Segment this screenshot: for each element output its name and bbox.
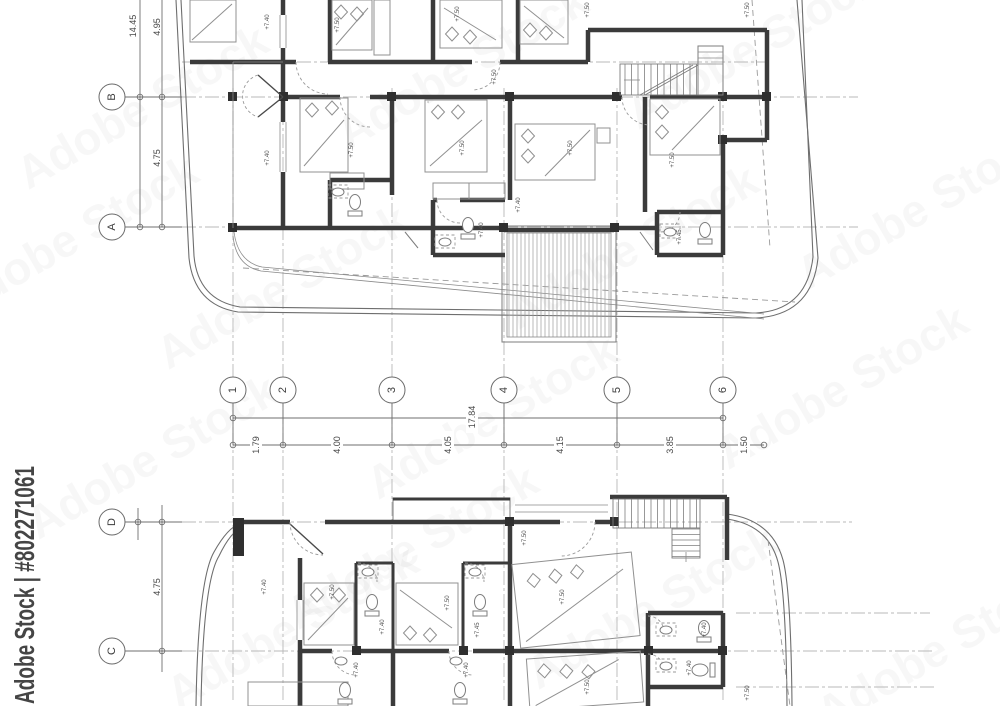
grid-row-label: B	[106, 93, 118, 100]
blueprint-page: Adobe StockAdobe StockAdobe StockAdobe S…	[0, 0, 1000, 706]
dimension-segment: 4.05	[443, 436, 453, 454]
stock-id-watermark: Adobe Stock | #802271061	[9, 466, 40, 704]
ghost-watermarks: Adobe StockAdobe StockAdobe StockAdobe S…	[0, 0, 1000, 706]
grid-column-label: 4	[498, 387, 510, 393]
deck	[502, 226, 616, 342]
grid-row-label: C	[106, 647, 118, 655]
level-label: +7.50	[568, 140, 574, 156]
level-label: +7.50	[522, 530, 528, 546]
ghost-watermark-text: Adobe Stock	[787, 113, 1000, 299]
level-label: +7.45	[677, 229, 683, 245]
grid-row-label: A	[106, 223, 118, 231]
level-label: +7.50	[349, 142, 355, 158]
level-label: +7.40	[479, 222, 485, 238]
grid-column-label: 3	[386, 387, 398, 393]
level-label: +7.40	[354, 662, 360, 678]
level-label: +7.50	[745, 2, 751, 18]
dimension-text: 14.45	[128, 15, 138, 38]
level-label: +7.50	[330, 584, 336, 600]
dimension-text: 4.95	[152, 18, 162, 36]
ghost-watermark-text: Adobe Stock	[327, 0, 597, 159]
grid-column-label: 2	[277, 387, 289, 393]
grid-column-label: 1	[227, 387, 239, 393]
level-label: +7.50	[335, 17, 341, 33]
level-label: +7.50	[585, 2, 591, 18]
level-label: +7.40	[516, 197, 522, 213]
level-label: +7.50	[585, 679, 591, 695]
level-label: +7.50	[492, 69, 498, 85]
level-label: +7.50	[670, 152, 676, 168]
dimension-text: 4.75	[152, 149, 162, 167]
level-label: +7.40	[262, 579, 268, 595]
level-label: +7.40	[702, 622, 708, 638]
dimension-total: 17.84	[467, 406, 477, 429]
grid-column-label: 5	[611, 387, 623, 393]
level-label: +7.50	[560, 589, 566, 605]
level-label: +7.40	[265, 150, 271, 166]
level-label: +7.40	[687, 660, 693, 676]
grid-row-label: D	[106, 518, 118, 526]
level-label: +7.40	[380, 619, 386, 635]
level-label: +7.50	[455, 6, 461, 22]
dimension-segment: 4.00	[332, 436, 342, 454]
dimension-segment: 4.15	[555, 436, 565, 454]
dimension-segment: 3.85	[665, 436, 675, 454]
dimension-segment: 1.50	[739, 436, 749, 454]
dimension-segment: 1.79	[251, 436, 261, 454]
level-label: +7.40	[265, 14, 271, 30]
level-label: +7.50	[460, 140, 466, 156]
level-label: +7.50	[745, 685, 751, 701]
level-label: +7.40	[464, 662, 470, 678]
ghost-watermark-text: Adobe Stock	[807, 553, 1000, 706]
level-label: +7.45	[475, 622, 481, 638]
blueprint-canvas: Adobe StockAdobe StockAdobe StockAdobe S…	[0, 0, 1000, 706]
grid-column-label: 6	[717, 387, 729, 393]
dimension-text: 4.75	[152, 578, 162, 596]
level-label: +7.50	[445, 595, 451, 611]
ghost-watermark-text: Adobe Stock	[517, 513, 787, 699]
